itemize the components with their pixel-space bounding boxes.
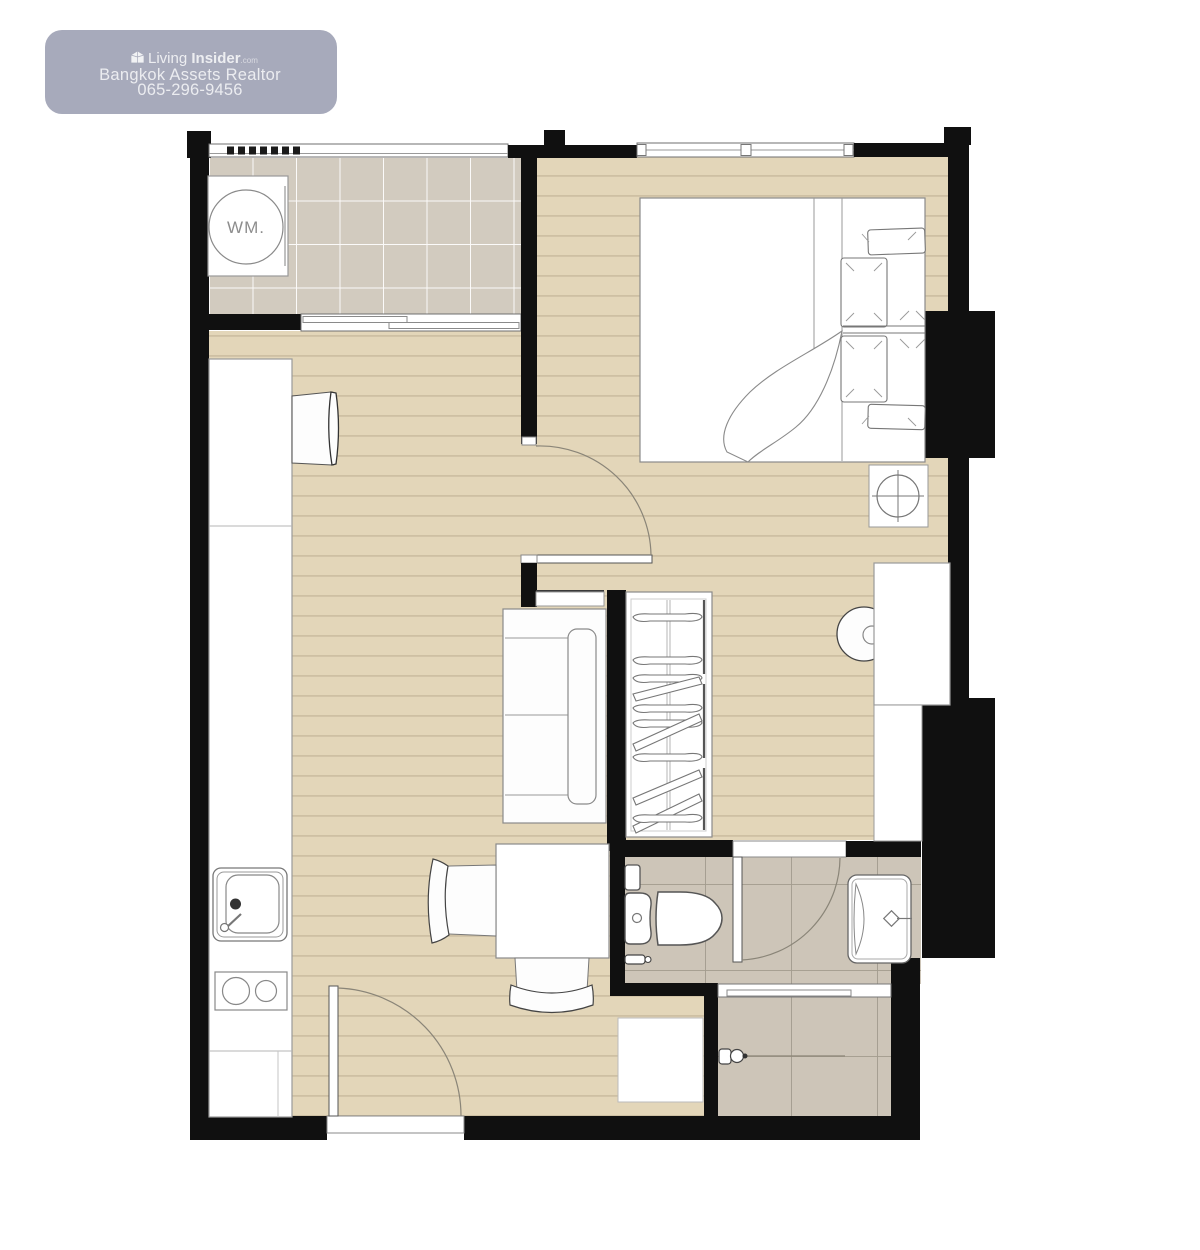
svg-text:WM.: WM. bbox=[227, 218, 265, 237]
svg-text:065-296-9456: 065-296-9456 bbox=[137, 81, 242, 99]
